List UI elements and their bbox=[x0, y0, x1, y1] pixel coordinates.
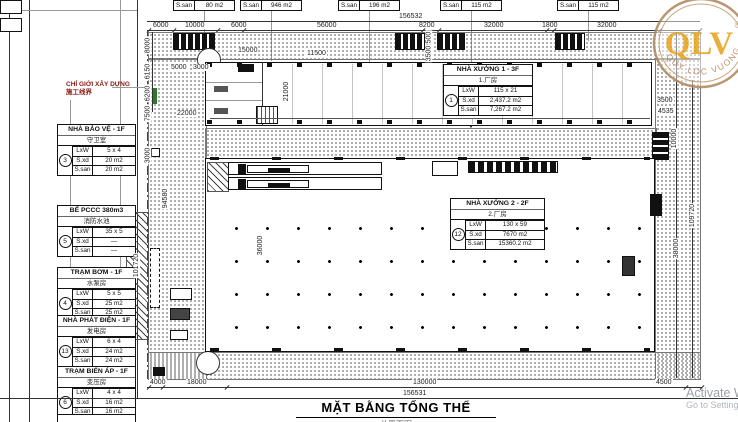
area-tag-value: 196 m2 bbox=[360, 1, 399, 10]
area-tag-value: 946 m2 bbox=[262, 1, 301, 10]
row-value: 16 m2 bbox=[93, 398, 135, 408]
row-label: S.xd bbox=[73, 347, 93, 357]
dim-label: 4535 bbox=[657, 108, 675, 115]
guard-house bbox=[151, 148, 160, 157]
column-dot-grid bbox=[212, 204, 648, 350]
legend-number: 4 bbox=[58, 289, 73, 318]
row-label: S.san bbox=[73, 165, 93, 175]
dim-label: 56000 bbox=[316, 22, 337, 29]
legend-number: 13 bbox=[58, 337, 73, 366]
row-label: LxW bbox=[73, 388, 93, 398]
dim-label: 156532 bbox=[398, 13, 423, 20]
legend-title-cn: 消防水池 bbox=[58, 216, 135, 226]
area-tag-label: S.san bbox=[241, 1, 262, 10]
row-value: — bbox=[93, 246, 135, 256]
area-tag-label: S.san bbox=[339, 1, 360, 10]
row-label: LxW bbox=[459, 86, 479, 96]
gate-turnaround bbox=[196, 351, 220, 375]
row-value: 35 x 5 bbox=[93, 227, 135, 237]
row-value: 2,437.2 m2 bbox=[479, 96, 532, 106]
legend-title: NHÀ PHÁT ĐIỆN - 1F bbox=[58, 316, 135, 326]
title-rule bbox=[0, 398, 738, 399]
area-tag-label: S.san bbox=[174, 1, 195, 10]
dim-label: 32000 bbox=[596, 22, 617, 29]
office-partition bbox=[206, 100, 262, 101]
truck bbox=[238, 179, 310, 189]
dim-label: 21000 bbox=[283, 81, 290, 102]
row-label: LxW bbox=[73, 146, 93, 156]
stair-block bbox=[238, 64, 254, 72]
furniture bbox=[214, 108, 228, 114]
row-value: 6 x 4 bbox=[93, 337, 135, 347]
dim-label: 4500 bbox=[655, 379, 673, 386]
office-partition bbox=[206, 82, 262, 83]
stair-block bbox=[256, 106, 278, 124]
dim-label: 6200 bbox=[144, 85, 151, 103]
legend-title-cn: 守卫室 bbox=[58, 135, 135, 145]
truck-plate bbox=[268, 183, 290, 187]
row-label: S.san bbox=[466, 239, 486, 249]
dim-label: 156531 bbox=[402, 390, 427, 397]
parking-cars bbox=[555, 33, 585, 50]
area-tag-value: 80 m2 bbox=[195, 1, 234, 10]
area-tag: S.san 115 m2 bbox=[440, 0, 502, 11]
construction-boundary-note: CHỈ GIỚI XÂY DỰNG 施工线界 bbox=[66, 81, 130, 96]
dim-label: 3000 bbox=[144, 147, 151, 165]
dim-label: 109720 bbox=[689, 203, 696, 228]
boundary-leader bbox=[112, 87, 147, 88]
row-value: 130 x 59 bbox=[486, 220, 544, 230]
drawing-title: MẶT BẰNG TỔNG THỂ bbox=[296, 400, 496, 418]
row-value: 5 x 5 bbox=[93, 289, 135, 299]
legend-title-cn: 变压房 bbox=[58, 377, 135, 387]
row-label: LxW bbox=[73, 289, 93, 299]
dim-label: 7500 bbox=[144, 105, 151, 123]
dock-equipment bbox=[468, 161, 558, 173]
qlv-logo: QLV ® QUY LOC VUONG bbox=[645, 0, 738, 105]
row-label: S.san bbox=[459, 105, 479, 115]
row-value: 25 m2 bbox=[93, 299, 135, 309]
dim-label: 130000 bbox=[412, 379, 437, 386]
factory-2-info-box: NHÀ XƯỞNG 2 - 2F 2.厂房 12 LxW 130 x 59 S.… bbox=[450, 198, 545, 250]
door-marks bbox=[210, 157, 650, 160]
dock-lift bbox=[650, 194, 662, 216]
row-label: S.xd bbox=[466, 230, 486, 240]
truck bbox=[238, 164, 310, 174]
legend-title-cn: 发电房 bbox=[58, 326, 135, 336]
row-value: 20 m2 bbox=[93, 156, 135, 166]
boundary-note-cn: 施工线界 bbox=[66, 89, 130, 97]
truck-plate bbox=[268, 168, 290, 172]
dim-line bbox=[210, 118, 650, 119]
row-label: S.xd bbox=[459, 96, 479, 106]
legend-number: 3 bbox=[58, 146, 73, 175]
truck-trailer bbox=[247, 165, 309, 173]
dim-label: 15000 bbox=[237, 47, 258, 54]
factory-title-cn: 1.厂房 bbox=[444, 75, 532, 85]
dim-label: 5000 bbox=[170, 64, 188, 71]
legend-number: 5 bbox=[58, 227, 73, 256]
dim-label: 18000 bbox=[186, 379, 207, 386]
factory-title: NHÀ XƯỞNG 2 - 2F bbox=[451, 199, 544, 209]
elevator-block bbox=[622, 256, 635, 276]
dim-label: 94580 bbox=[162, 188, 169, 209]
legend-title: NHÀ BẢO VỆ - 1F bbox=[58, 125, 135, 135]
area-tag: S.san 196 m2 bbox=[338, 0, 400, 11]
area-tag-value: 115 m2 bbox=[462, 1, 501, 10]
utility-room bbox=[432, 161, 458, 176]
cutoff-cell bbox=[0, 0, 22, 14]
activation-settings-text: Go to Settings bbox=[686, 400, 738, 410]
dim-label: 10000 bbox=[671, 128, 678, 149]
truck-cab bbox=[238, 164, 246, 174]
legend-number: 6 bbox=[58, 388, 73, 417]
road-band-middle bbox=[205, 128, 657, 160]
legend-title: TRẠM BIẾN ÁP - 1F bbox=[58, 367, 135, 377]
legend-cutoff-box bbox=[57, 414, 136, 422]
row-label: LxW bbox=[73, 337, 93, 347]
parking-cars bbox=[395, 33, 425, 50]
transformer-station bbox=[170, 330, 188, 340]
factory-title: NHÀ XƯỞNG 1 - 3F bbox=[444, 65, 532, 75]
pump-station bbox=[170, 288, 192, 300]
row-label: S.xd bbox=[73, 398, 93, 408]
legend-title-cn: 水泵房 bbox=[58, 278, 135, 288]
legend-generator-house: NHÀ PHÁT ĐIỆN - 1F 发电房 13 LxW 6 x 4 S.xd… bbox=[57, 315, 136, 367]
area-tag-label: S.san bbox=[558, 1, 579, 10]
legend-pump-station: TRẠM BƠM - 1F 水泵房 4 LxW 5 x 5 S.xd 25 m2… bbox=[57, 267, 136, 319]
factory-number: 12 bbox=[451, 220, 466, 249]
row-value: 7670 m2 bbox=[486, 230, 544, 240]
frame-line bbox=[9, 0, 10, 422]
dim-label: 6150 bbox=[144, 63, 151, 81]
truck-cab bbox=[238, 179, 246, 189]
landscape-band-bottom bbox=[148, 352, 701, 380]
row-label: S.san bbox=[73, 246, 93, 256]
row-value: 15360.2 m2 bbox=[486, 239, 544, 249]
dim-label: 3000 bbox=[192, 64, 210, 71]
row-value: 4 x 4 bbox=[93, 388, 135, 398]
furniture bbox=[214, 86, 228, 92]
dim-label: 36000 bbox=[257, 235, 264, 256]
row-label: S.xd bbox=[73, 299, 93, 309]
legend-fire-tank: BỂ PCCC 380m3 消防水池 5 LxW 35 x 5 S.xd — S… bbox=[57, 205, 136, 257]
area-tag: S.san 946 m2 bbox=[240, 0, 302, 11]
frame-line bbox=[29, 0, 30, 422]
generator-house bbox=[170, 308, 190, 320]
row-label: S.xd bbox=[73, 237, 93, 247]
row-value: 24 m2 bbox=[93, 356, 135, 366]
legend-title: BỂ PCCC 380m3 bbox=[58, 206, 135, 216]
factory-number: 1 bbox=[444, 86, 459, 115]
dim-line bbox=[147, 387, 702, 388]
small-structure bbox=[153, 367, 165, 376]
factory-1-info-box: NHÀ XƯỞNG 1 - 3F 1.厂房 1 LxW 115 x 21 S.x… bbox=[443, 64, 533, 116]
dim-label: 8200 bbox=[418, 22, 436, 29]
fire-water-tank bbox=[150, 248, 160, 308]
row-value: 5 x 4 bbox=[93, 146, 135, 156]
parking-cars bbox=[652, 132, 669, 160]
dim-label: 32000 bbox=[483, 22, 504, 29]
activation-text: Activate W bbox=[686, 386, 738, 400]
row-value: 20 m2 bbox=[93, 165, 135, 175]
area-tag: S.san 80 m2 bbox=[173, 0, 235, 11]
legend-title: TRẠM BƠM - 1F bbox=[58, 268, 135, 278]
dock-ramp-hatch bbox=[207, 162, 229, 192]
row-value: 115 x 21 bbox=[479, 86, 532, 96]
factory-title-cn: 2.厂房 bbox=[451, 209, 544, 219]
row-label: LxW bbox=[73, 227, 93, 237]
dim-line bbox=[152, 32, 153, 112]
row-value: 7,267.2 m2 bbox=[479, 105, 532, 115]
legend-transformer-station: TRẠM BIẾN ÁP - 1F 变压房 6 LxW 4 x 4 S.xd 1… bbox=[57, 366, 136, 418]
parking-cars bbox=[437, 33, 465, 50]
dim-line bbox=[692, 80, 693, 378]
row-value: — bbox=[93, 237, 135, 247]
area-tag: S.san 115 m2 bbox=[557, 0, 619, 11]
dim-label: 22000 bbox=[176, 110, 197, 117]
dim-label: 10000 bbox=[184, 22, 205, 29]
dim-label: 6000 bbox=[152, 22, 170, 29]
cutoff-cell bbox=[0, 18, 22, 32]
dim-label: 3500 bbox=[425, 45, 432, 63]
truck-trailer bbox=[247, 180, 309, 188]
legend-guard-house: NHÀ BẢO VỆ - 1F 守卫室 3 LxW 5 x 4 S.xd 20 … bbox=[57, 124, 136, 176]
dim-label: 101720 bbox=[133, 253, 140, 278]
site-plan-drawing: S.san 80 m2 S.san 946 m2 S.san 196 m2 S.… bbox=[0, 0, 738, 422]
row-label: LxW bbox=[466, 220, 486, 230]
area-tag-label: S.san bbox=[441, 1, 462, 10]
door-marks bbox=[210, 348, 650, 351]
column-row bbox=[207, 63, 650, 67]
area-tag-value: 115 m2 bbox=[579, 1, 618, 10]
row-value: 24 m2 bbox=[93, 347, 135, 357]
dim-label: 38000 bbox=[673, 238, 680, 259]
row-label: S.san bbox=[73, 356, 93, 366]
row-label: S.xd bbox=[73, 156, 93, 166]
dim-label: 8000 bbox=[144, 37, 151, 55]
dim-label: 11500 bbox=[306, 50, 327, 57]
